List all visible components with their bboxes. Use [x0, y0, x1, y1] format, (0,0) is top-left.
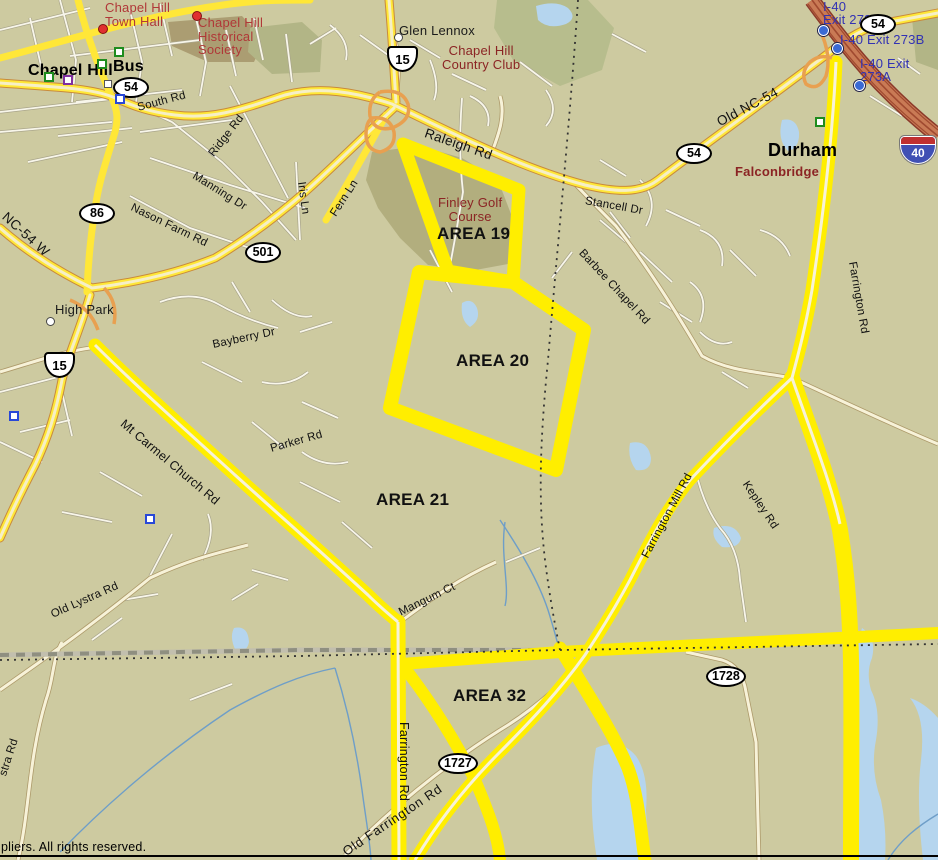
town-dot-glen-lennox: [394, 33, 403, 42]
map-canvas[interactable]: Chapel Hill Town Hall Chapel Hill Histor…: [0, 0, 938, 860]
route-shield-1728: 1728: [706, 666, 746, 687]
town-dot-high-park: [46, 317, 55, 326]
interstate-shield-red-band: [901, 137, 935, 145]
poi-square-icon: [104, 80, 112, 88]
map-graphics: [0, 0, 938, 860]
poi-dot-town-hall: [98, 24, 108, 34]
poi-square-icon: [9, 411, 19, 421]
map-bottom-border: [0, 855, 938, 857]
poi-square-icon: [815, 117, 825, 127]
route-shield-54-mid: 54: [676, 143, 712, 164]
poi-square-icon: [114, 47, 124, 57]
route-shield-54-topright: 54: [860, 14, 896, 35]
poi-square-icon: [44, 72, 54, 82]
route-shield-86: 86: [79, 203, 115, 224]
route-shield-1727: 1727: [438, 753, 478, 774]
poi-square-icon: [145, 514, 155, 524]
poi-square-icon: [115, 94, 125, 104]
exit-dot-273: [818, 25, 829, 36]
route-shield-501: 501: [245, 242, 281, 263]
interstate-shield-number: 40: [901, 145, 935, 161]
exit-dot-273b: [832, 43, 843, 54]
poi-square-icon: [97, 59, 107, 69]
poi-square-icon: [63, 75, 73, 85]
poi-dot-historical-society: [192, 11, 202, 21]
exit-dot-273a: [854, 80, 865, 91]
